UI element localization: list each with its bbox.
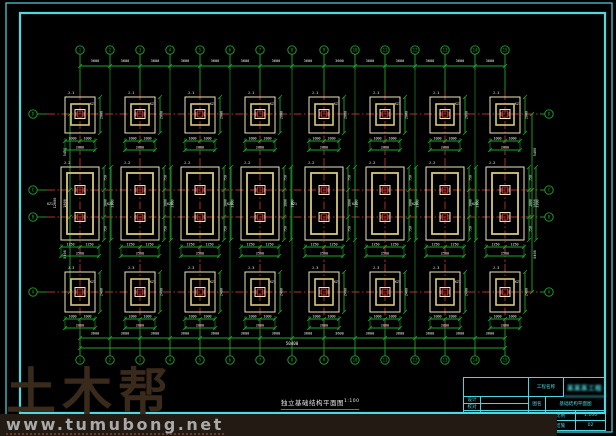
drawing-title-text: 独立基础结构平面图	[281, 399, 344, 407]
footing-row3: J-3KZ11000100020002400	[123, 265, 164, 330]
svg-text:1000: 1000	[143, 137, 151, 141]
svg-text:KZ1: KZ1	[455, 280, 461, 284]
svg-text:2400: 2400	[100, 288, 104, 296]
grid-bubble-col-bottom: 15	[501, 356, 509, 364]
svg-text:J-2: J-2	[184, 160, 191, 165]
svg-text:1000: 1000	[203, 137, 211, 141]
svg-text:1000: 1000	[312, 137, 320, 141]
svg-text:3600: 3600	[181, 59, 190, 63]
svg-text:2000: 2000	[525, 111, 529, 119]
grid-bubble-col-top: 14	[471, 46, 479, 54]
svg-text:KZ1: KZ1	[515, 280, 521, 284]
svg-text:J-2: J-2	[429, 160, 436, 165]
svg-text:1000: 1000	[448, 137, 456, 141]
svg-text:2000: 2000	[381, 324, 389, 328]
svg-text:J-1: J-1	[493, 90, 501, 95]
svg-text:KZ1: KZ1	[270, 280, 276, 284]
svg-text:2500: 2500	[381, 252, 389, 256]
svg-text:3300: 3300	[536, 199, 540, 207]
svg-text:3600: 3600	[426, 59, 435, 63]
svg-text:750: 750	[284, 175, 288, 181]
svg-text:50400: 50400	[286, 341, 299, 346]
svg-text:3600: 3600	[426, 332, 435, 336]
svg-text:2000: 2000	[100, 111, 104, 119]
svg-text:1000: 1000	[143, 315, 151, 319]
svg-text:2500: 2500	[76, 252, 84, 256]
svg-text:1000: 1000	[508, 315, 516, 319]
watermark-text: 土木帮	[6, 352, 174, 424]
svg-text:2000: 2000	[136, 146, 144, 150]
svg-text:1000: 1000	[68, 137, 76, 141]
svg-text:14: 14	[473, 48, 478, 53]
svg-text:3600: 3600	[241, 332, 250, 336]
footing-row1: J-1KZ11000100020002000	[368, 90, 409, 152]
svg-text:1000: 1000	[388, 315, 396, 319]
grid-bubble-col-top: 8	[288, 46, 296, 54]
svg-text:KZ1: KZ1	[90, 102, 96, 106]
footing-row3: J-3KZ11000100020002400	[488, 265, 529, 330]
svg-text:J-3: J-3	[248, 265, 255, 270]
grid-bubble-col-top: 7	[256, 46, 264, 54]
svg-text:1000: 1000	[188, 137, 196, 141]
footing-row2: J-2KZ112501250250075018007503300	[352, 160, 419, 258]
svg-text:12: 12	[413, 48, 418, 53]
svg-text:3600: 3600	[366, 332, 375, 336]
svg-text:3600: 3600	[91, 332, 100, 336]
grid-bubble-col-bottom: 6	[226, 356, 234, 364]
grid-bubble-col-bottom: 12	[411, 356, 419, 364]
svg-text:2000: 2000	[280, 111, 284, 119]
svg-text:KZ1: KZ1	[412, 202, 418, 206]
svg-text:1250: 1250	[491, 243, 499, 247]
svg-text:1000: 1000	[373, 315, 381, 319]
svg-text:1000: 1000	[373, 137, 381, 141]
svg-text:1800: 1800	[529, 199, 533, 207]
title-block-empty-cell	[464, 378, 529, 397]
svg-text:2000: 2000	[256, 324, 264, 328]
svg-text:1000: 1000	[493, 137, 501, 141]
svg-text:3600: 3600	[151, 59, 160, 63]
svg-text:J-2: J-2	[124, 160, 131, 165]
footing-row3: J-3KZ11000100020002400	[428, 265, 469, 330]
svg-text:1250: 1250	[186, 243, 194, 247]
svg-text:750: 750	[104, 175, 108, 181]
svg-text:3600: 3600	[91, 59, 100, 63]
svg-text:KZ1: KZ1	[210, 102, 216, 106]
svg-text:2000: 2000	[136, 324, 144, 328]
svg-text:2500: 2500	[136, 252, 144, 256]
svg-text:KZ1: KZ1	[150, 102, 156, 106]
svg-text:KZ1: KZ1	[210, 280, 216, 284]
svg-text:3600: 3600	[272, 332, 281, 336]
grid-bubble-col-top: 13	[441, 46, 449, 54]
svg-text:3600: 3600	[211, 59, 220, 63]
svg-text:J-2: J-2	[489, 160, 496, 165]
svg-text:750: 750	[529, 175, 533, 181]
svg-text:1250: 1250	[329, 243, 337, 247]
svg-text:J-3: J-3	[128, 265, 135, 270]
svg-text:3600: 3600	[304, 59, 313, 63]
svg-text:1000: 1000	[493, 315, 501, 319]
svg-text:2400: 2400	[160, 288, 164, 296]
svg-text:14: 14	[473, 358, 478, 363]
svg-text:5400: 5400	[63, 250, 67, 259]
grid-bubble-col-bottom: 11	[381, 356, 389, 364]
svg-text:1800: 1800	[348, 199, 352, 207]
svg-text:J-3: J-3	[68, 265, 75, 270]
svg-text:1000: 1000	[68, 315, 76, 319]
checker-value	[481, 404, 529, 411]
svg-text:3600: 3600	[456, 332, 465, 336]
svg-text:1250: 1250	[205, 243, 213, 247]
project-label-cell: 工程名称	[529, 378, 564, 397]
svg-text:3600: 3600	[396, 59, 405, 63]
svg-text:2400: 2400	[344, 288, 348, 296]
svg-text:J-3: J-3	[493, 265, 500, 270]
svg-text:J-1: J-1	[188, 90, 196, 95]
svg-text:12600: 12600	[53, 198, 57, 209]
svg-text:KZ1: KZ1	[291, 202, 297, 206]
svg-text:J-1: J-1	[373, 90, 381, 95]
svg-text:1000: 1000	[388, 137, 396, 141]
svg-text:3600: 3600	[456, 59, 465, 63]
footing-row3: J-3KZ11000100020002400	[243, 265, 284, 330]
svg-text:KZ1: KZ1	[334, 280, 340, 284]
svg-text:1250: 1250	[145, 243, 153, 247]
svg-text:1250: 1250	[126, 243, 134, 247]
svg-text:1000: 1000	[312, 315, 320, 319]
designer-value	[481, 397, 529, 404]
svg-text:KZ1: KZ1	[270, 102, 276, 106]
svg-text:1250: 1250	[310, 243, 318, 247]
drawing-title: 独立基础结构平面图1:100	[281, 398, 359, 410]
sheet-number: 02	[576, 421, 605, 430]
svg-text:3600: 3600	[335, 332, 344, 336]
svg-text:J-1: J-1	[128, 90, 136, 95]
svg-text:1000: 1000	[263, 315, 271, 319]
svg-text:J-2: J-2	[369, 160, 376, 165]
sheet: 1122334455667788991010111112121313141415…	[0, 0, 616, 436]
svg-text:750: 750	[164, 226, 168, 232]
svg-text:2500: 2500	[441, 252, 449, 256]
svg-text:1000: 1000	[128, 137, 136, 141]
footing-row1: J-1KZ11000100020002000	[243, 90, 284, 152]
svg-text:2000: 2000	[220, 111, 224, 119]
svg-text:1000: 1000	[508, 137, 516, 141]
svg-text:750: 750	[409, 226, 413, 232]
svg-text:3600: 3600	[241, 59, 250, 63]
grid-bubble-col-top: 5	[196, 46, 204, 54]
svg-text:3600: 3600	[486, 59, 495, 63]
svg-text:1250: 1250	[85, 243, 93, 247]
svg-text:2500: 2500	[256, 252, 264, 256]
scale-value: 1:100	[576, 411, 605, 421]
grid-bubble-col-bottom: 14	[471, 356, 479, 364]
svg-text:750: 750	[469, 175, 473, 181]
svg-text:2000: 2000	[405, 111, 409, 119]
svg-text:2400: 2400	[220, 288, 224, 296]
svg-text:750: 750	[224, 175, 228, 181]
svg-text:2000: 2000	[320, 146, 328, 150]
svg-text:2000: 2000	[441, 146, 449, 150]
svg-text:2000: 2000	[76, 324, 84, 328]
svg-text:KZ1: KZ1	[47, 202, 53, 206]
svg-text:3600: 3600	[486, 332, 495, 336]
svg-text:15: 15	[503, 48, 508, 53]
grid-bubble-col-top: 2	[106, 46, 114, 54]
svg-text:10: 10	[353, 48, 358, 53]
footing-row1: J-1KZ11000100020002000	[63, 90, 104, 152]
footing-row2: J-2KZ112501250250075018007503300	[47, 160, 114, 258]
footing-row2: J-2KZ112501250250075018007503300	[107, 160, 174, 258]
svg-text:3600: 3600	[366, 59, 375, 63]
svg-text:11: 11	[383, 48, 388, 53]
drawing-title-scale: 1:100	[344, 399, 359, 404]
footing-row1: J-1KZ11000100020002000	[428, 90, 469, 152]
svg-text:KZ1: KZ1	[455, 102, 461, 106]
footing-row3: J-3KZ11000100020002400	[307, 265, 348, 330]
grid-bubble-col-top: 12	[411, 46, 419, 54]
svg-text:KZ1: KZ1	[515, 102, 521, 106]
svg-text:1000: 1000	[83, 137, 91, 141]
svg-text:1250: 1250	[371, 243, 379, 247]
svg-text:750: 750	[469, 226, 473, 232]
svg-text:J-2: J-2	[308, 160, 315, 165]
grid-bubble-col-top: 4	[166, 46, 174, 54]
grid-bubble-col-bottom: 8	[288, 356, 296, 364]
footing-row3: J-3KZ11000100020002400	[63, 265, 104, 330]
checker-label: 校对	[464, 404, 481, 411]
svg-text:KZ1: KZ1	[90, 280, 96, 284]
svg-text:1250: 1250	[390, 243, 398, 247]
svg-text:2000: 2000	[501, 324, 509, 328]
svg-text:1000: 1000	[433, 137, 441, 141]
svg-text:15: 15	[503, 358, 508, 363]
project-name-cell: 某某某工程	[564, 378, 605, 397]
svg-text:2400: 2400	[405, 288, 409, 296]
svg-text:1000: 1000	[128, 315, 136, 319]
svg-text:1000: 1000	[327, 137, 335, 141]
grid-bubble-col-top: 15	[501, 46, 509, 54]
grid-bubble-col-top: 9	[320, 46, 328, 54]
svg-text:2000: 2000	[344, 111, 348, 119]
svg-text:750: 750	[409, 175, 413, 181]
footing-row2: J-2KZ112501250250075018007503300	[291, 160, 358, 258]
footing-row1: J-1KZ11000100020002000	[183, 90, 224, 152]
svg-text:KZ1: KZ1	[150, 280, 156, 284]
svg-text:750: 750	[224, 226, 228, 232]
svg-text:1250: 1250	[66, 243, 74, 247]
grid-bubble-col-top: 6	[226, 46, 234, 54]
svg-text:2000: 2000	[501, 146, 509, 150]
svg-text:13: 13	[443, 358, 448, 363]
grid-bubble-col-top: 11	[381, 46, 389, 54]
svg-text:2000: 2000	[381, 146, 389, 150]
svg-text:750: 750	[348, 175, 352, 181]
svg-text:KZ1: KZ1	[227, 202, 233, 206]
svg-text:1000: 1000	[203, 315, 211, 319]
svg-text:J-3: J-3	[433, 265, 440, 270]
svg-text:2500: 2500	[196, 252, 204, 256]
svg-text:3600: 3600	[272, 59, 281, 63]
svg-text:3600: 3600	[304, 332, 313, 336]
svg-text:KZ1: KZ1	[472, 202, 478, 206]
svg-text:J-3: J-3	[188, 265, 195, 270]
grid-bubble-col-bottom: 13	[441, 356, 449, 364]
grid-bubble-col-bottom: 9	[320, 356, 328, 364]
svg-text:2000: 2000	[441, 324, 449, 328]
svg-text:J-1: J-1	[312, 90, 320, 95]
svg-text:5400: 5400	[533, 148, 537, 157]
svg-text:1000: 1000	[248, 137, 256, 141]
svg-text:1000: 1000	[263, 137, 271, 141]
svg-text:J-2: J-2	[244, 160, 251, 165]
svg-text:3600: 3600	[181, 332, 190, 336]
svg-text:1250: 1250	[265, 243, 273, 247]
svg-text:1250: 1250	[510, 243, 518, 247]
svg-text:3600: 3600	[151, 332, 160, 336]
svg-text:2000: 2000	[465, 111, 469, 119]
footing-row2: J-2KZ112501250250075018007503300	[167, 160, 234, 258]
drawing-name-value: 基础结构平面图	[546, 397, 605, 411]
svg-text:KZ1: KZ1	[395, 280, 401, 284]
svg-text:J-2: J-2	[64, 160, 71, 165]
footing-row3: J-3KZ11000100020002400	[183, 265, 224, 330]
designer-label: 设计	[464, 397, 481, 404]
footing-row1: J-1KZ11000100020002000	[123, 90, 164, 152]
svg-text:1800: 1800	[284, 199, 288, 207]
svg-text:J-1: J-1	[433, 90, 441, 95]
grid-bubble-col-top: 10	[351, 46, 359, 54]
svg-text:KZ1: KZ1	[107, 202, 113, 206]
svg-text:750: 750	[348, 226, 352, 232]
svg-text:1000: 1000	[433, 315, 441, 319]
svg-text:750: 750	[104, 226, 108, 232]
footing-row2: J-2KZ112501250250075018007503300	[472, 160, 539, 258]
svg-text:3600: 3600	[121, 332, 130, 336]
svg-text:2000: 2000	[320, 324, 328, 328]
svg-text:1250: 1250	[450, 243, 458, 247]
footing-row2: J-2KZ112501250250075018007503300	[227, 160, 294, 258]
svg-text:1000: 1000	[448, 315, 456, 319]
svg-text:2000: 2000	[76, 146, 84, 150]
svg-text:1250: 1250	[431, 243, 439, 247]
grid-bubble-col-bottom: 10	[351, 356, 359, 364]
svg-text:11: 11	[383, 358, 388, 363]
grid-bubble-col-bottom: 5	[196, 356, 204, 364]
svg-text:2400: 2400	[465, 288, 469, 296]
svg-text:2500: 2500	[320, 252, 328, 256]
footing-row2: J-2KZ112501250250075018007503300	[412, 160, 479, 258]
grid-bubble-col-top: 1	[76, 46, 84, 54]
svg-text:KZ1: KZ1	[395, 102, 401, 106]
svg-text:KZ1: KZ1	[334, 102, 340, 106]
svg-text:3600: 3600	[211, 332, 220, 336]
drawing-name-label: 图名	[529, 397, 546, 411]
svg-text:KZ1: KZ1	[167, 202, 173, 206]
svg-text:5400: 5400	[533, 250, 537, 259]
footing-row1: J-1KZ11000100020002000	[307, 90, 348, 152]
svg-text:2000: 2000	[196, 324, 204, 328]
svg-text:1000: 1000	[83, 315, 91, 319]
svg-text:10: 10	[353, 358, 358, 363]
svg-text:12: 12	[413, 358, 418, 363]
svg-text:3600: 3600	[121, 59, 130, 63]
svg-text:750: 750	[164, 175, 168, 181]
svg-text:3600: 3600	[396, 332, 405, 336]
grid-bubble-col-bottom: 7	[256, 356, 264, 364]
svg-text:2000: 2000	[256, 146, 264, 150]
footing-row1: J-1KZ11000100020002000	[488, 90, 529, 152]
footing-row3: J-3KZ11000100020002400	[368, 265, 409, 330]
svg-text:750: 750	[529, 226, 533, 232]
svg-text:2400: 2400	[525, 288, 529, 296]
svg-text:2000: 2000	[160, 111, 164, 119]
svg-text:J-3: J-3	[312, 265, 319, 270]
svg-text:J-3: J-3	[373, 265, 380, 270]
svg-text:13: 13	[443, 48, 448, 53]
svg-text:2400: 2400	[280, 288, 284, 296]
svg-text:1000: 1000	[327, 315, 335, 319]
svg-text:J-1: J-1	[68, 90, 76, 95]
svg-text:750: 750	[284, 226, 288, 232]
svg-text:2500: 2500	[501, 252, 509, 256]
svg-text:1000: 1000	[188, 315, 196, 319]
svg-text:J-1: J-1	[248, 90, 256, 95]
grid-bubble-col-top: 3	[136, 46, 144, 54]
svg-text:1000: 1000	[248, 315, 256, 319]
svg-text:2000: 2000	[196, 146, 204, 150]
svg-text:1250: 1250	[246, 243, 254, 247]
svg-text:KZ1: KZ1	[352, 202, 358, 206]
svg-text:3600: 3600	[335, 59, 344, 63]
